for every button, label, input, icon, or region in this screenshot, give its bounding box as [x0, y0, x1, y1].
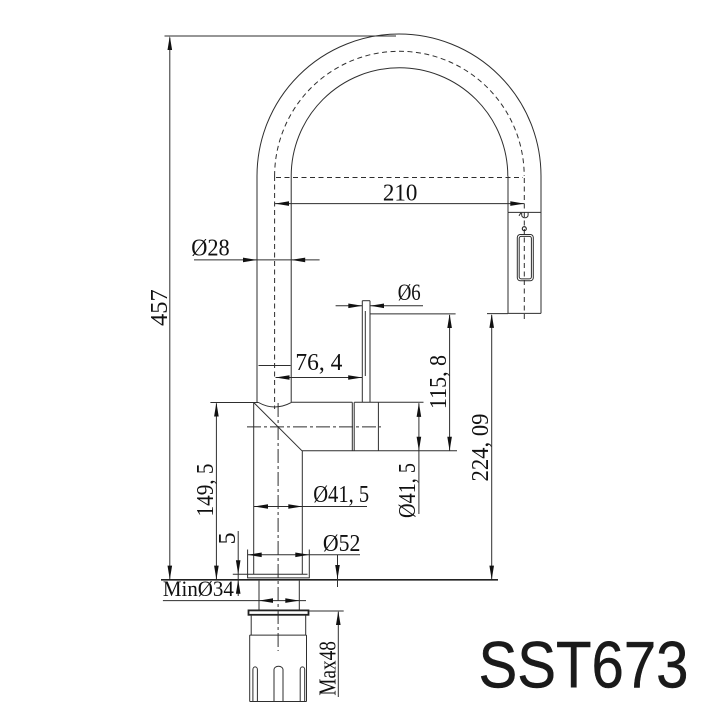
svg-text:5: 5 — [215, 532, 241, 544]
svg-text:224, 09: 224, 09 — [468, 414, 494, 482]
svg-text:Ø41, 5: Ø41, 5 — [395, 463, 421, 518]
svg-text:Max48: Max48 — [315, 641, 341, 696]
svg-text:Ø6: Ø6 — [398, 280, 421, 305]
svg-text:Ø41, 5: Ø41, 5 — [313, 482, 369, 508]
svg-text:Ø52: Ø52 — [323, 531, 361, 557]
svg-text:MinØ34: MinØ34 — [163, 576, 234, 601]
svg-text:Ø28: Ø28 — [191, 235, 230, 261]
svg-text:76, 4: 76, 4 — [295, 350, 342, 376]
svg-text:210: 210 — [383, 181, 418, 207]
svg-text:SST673: SST673 — [479, 627, 689, 701]
svg-text:457: 457 — [147, 289, 173, 326]
svg-text:115, 8: 115, 8 — [426, 355, 452, 409]
svg-text:149, 5: 149, 5 — [193, 464, 219, 517]
